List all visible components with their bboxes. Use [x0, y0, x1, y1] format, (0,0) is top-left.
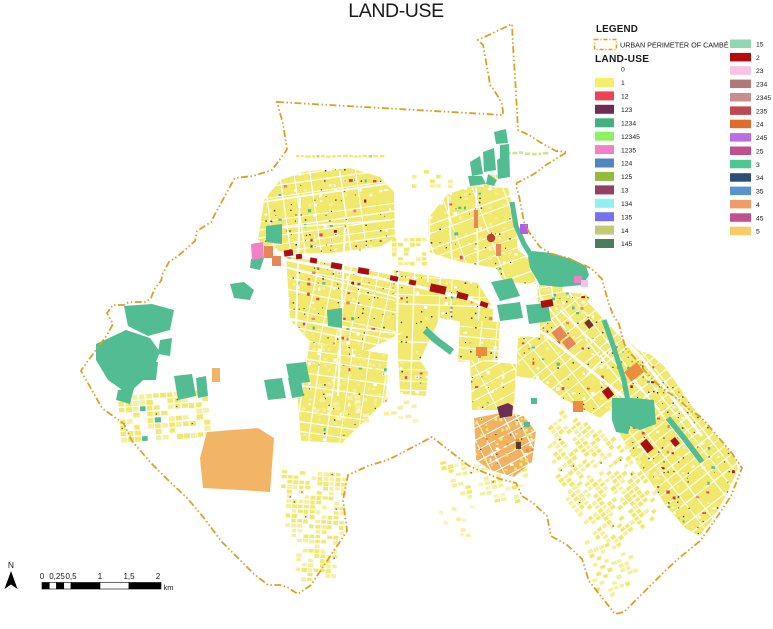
svg-text:km: km: [164, 583, 174, 592]
svg-text:1: 1: [98, 572, 103, 581]
svg-text:5: 5: [756, 229, 760, 236]
svg-text:LAND-USE: LAND-USE: [348, 0, 444, 22]
svg-text:LAND-USE: LAND-USE: [595, 54, 649, 65]
svg-text:245: 245: [756, 135, 768, 142]
svg-text:12: 12: [621, 94, 629, 101]
svg-text:135: 135: [621, 214, 633, 221]
svg-text:125: 125: [621, 174, 633, 181]
svg-text:25: 25: [756, 149, 764, 156]
svg-text:123: 123: [621, 107, 633, 114]
svg-text:LEGEND: LEGEND: [596, 24, 638, 35]
svg-text:45: 45: [756, 215, 764, 222]
svg-text:0: 0: [40, 572, 45, 581]
svg-text:0: 0: [621, 67, 625, 74]
svg-text:145: 145: [621, 241, 633, 248]
svg-text:34: 34: [756, 175, 764, 182]
svg-text:2: 2: [756, 55, 760, 62]
svg-text:0,25: 0,25: [49, 572, 65, 581]
svg-text:1235: 1235: [621, 147, 636, 154]
svg-text:1234: 1234: [621, 121, 636, 128]
svg-text:24: 24: [756, 122, 764, 129]
svg-text:2: 2: [156, 572, 161, 581]
svg-text:N: N: [8, 560, 14, 570]
svg-text:235: 235: [756, 108, 768, 115]
svg-text:35: 35: [756, 189, 764, 196]
svg-text:14: 14: [621, 228, 629, 235]
svg-text:12345: 12345: [621, 134, 640, 141]
svg-text:134: 134: [621, 201, 633, 208]
svg-text:0,5: 0,5: [65, 572, 77, 581]
svg-text:URBAN PERIMETER OF CAMBÉ: URBAN PERIMETER OF CAMBÉ: [620, 41, 729, 50]
svg-text:3: 3: [756, 162, 760, 169]
svg-text:1: 1: [621, 80, 625, 87]
svg-text:124: 124: [621, 161, 633, 168]
svg-text:15: 15: [756, 42, 764, 49]
svg-text:4: 4: [756, 202, 760, 209]
svg-text:2345: 2345: [756, 95, 771, 102]
svg-text:1,5: 1,5: [123, 572, 135, 581]
svg-text:234: 234: [756, 82, 768, 89]
svg-text:23: 23: [756, 68, 764, 75]
svg-text:13: 13: [621, 188, 629, 195]
